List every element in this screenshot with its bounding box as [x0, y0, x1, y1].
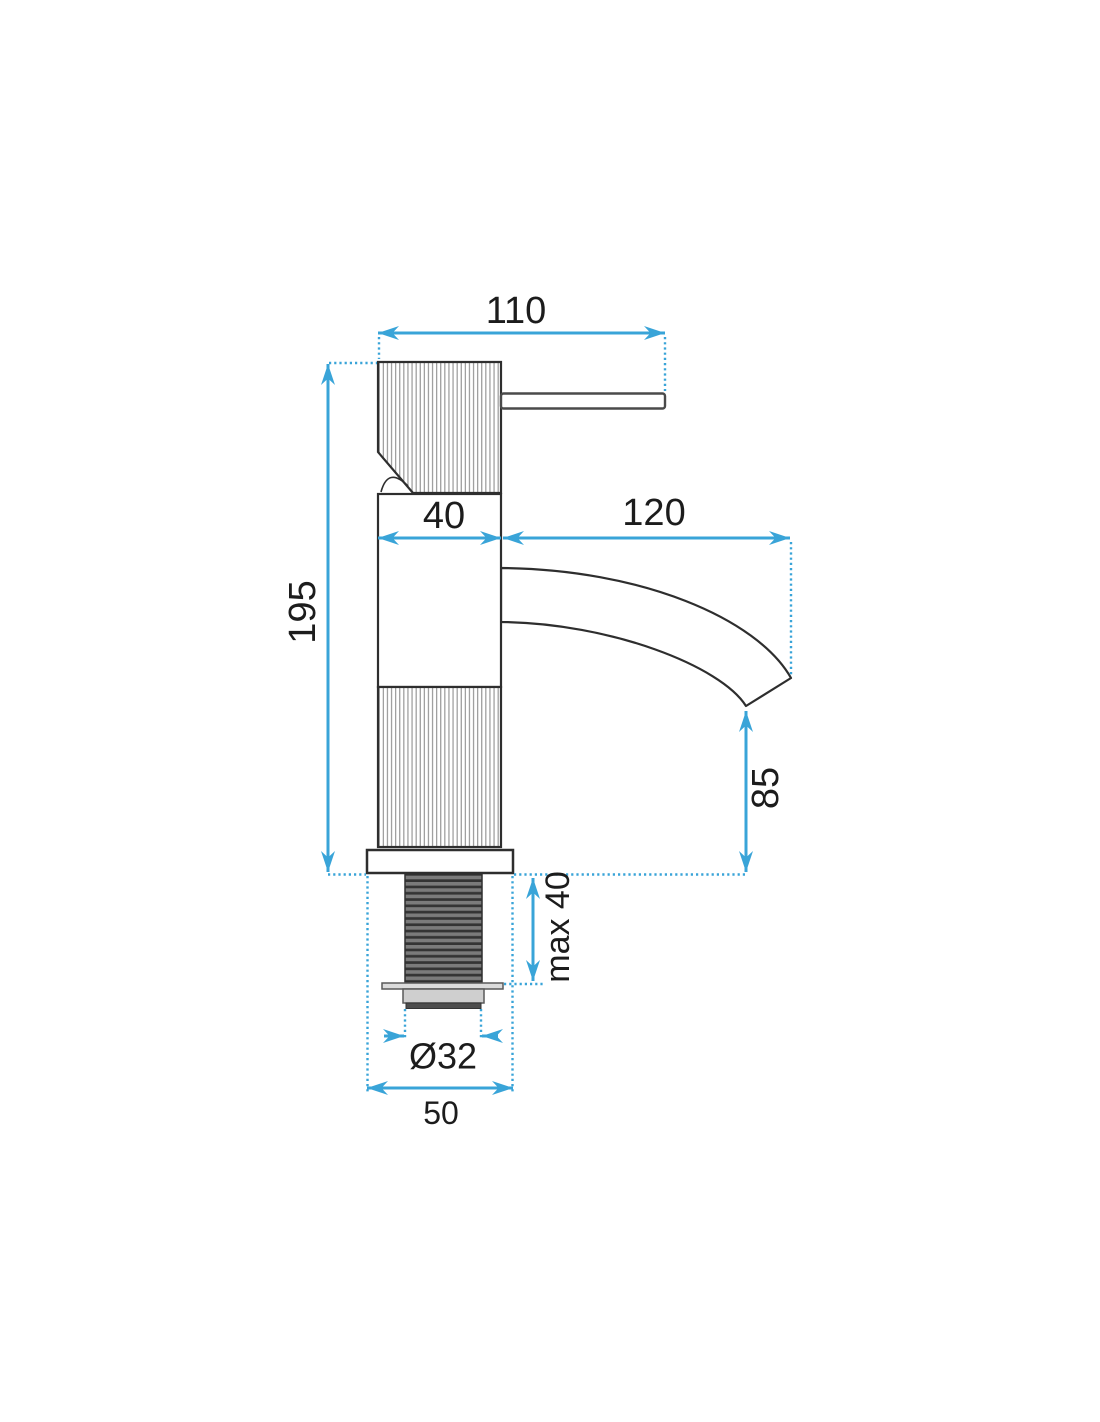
dimension-labels: 110 40 120 195 85 max 40 Ø32 50: [282, 290, 787, 1131]
dim-base-width: 50: [423, 1095, 459, 1131]
washer: [382, 983, 503, 989]
faucet-dimension-drawing: 110 40 120 195 85 max 40 Ø32 50: [0, 0, 1100, 1422]
technical-drawing-page: 110 40 120 195 85 max 40 Ø32 50: [0, 0, 1100, 1422]
dim-mount-max-thickness: max 40: [539, 871, 577, 983]
faucet-outline: [367, 362, 791, 1009]
handle-lever: [501, 394, 665, 409]
faucet-body-ribbed: [378, 687, 501, 847]
dim-top-width: 110: [486, 290, 547, 332]
mounting-thread: [405, 874, 482, 982]
base-flange: [367, 850, 513, 873]
handle-knob: [378, 362, 501, 493]
dim-spout-height: 85: [745, 767, 787, 809]
dim-spout-reach: 120: [622, 492, 685, 534]
spout: [501, 568, 791, 706]
dim-thread-diameter: Ø32: [409, 1036, 477, 1077]
mounting-nut: [403, 989, 484, 1003]
dim-total-height: 195: [282, 580, 324, 643]
thread-stub: [406, 1003, 481, 1009]
dim-body-width: 40: [423, 495, 465, 537]
